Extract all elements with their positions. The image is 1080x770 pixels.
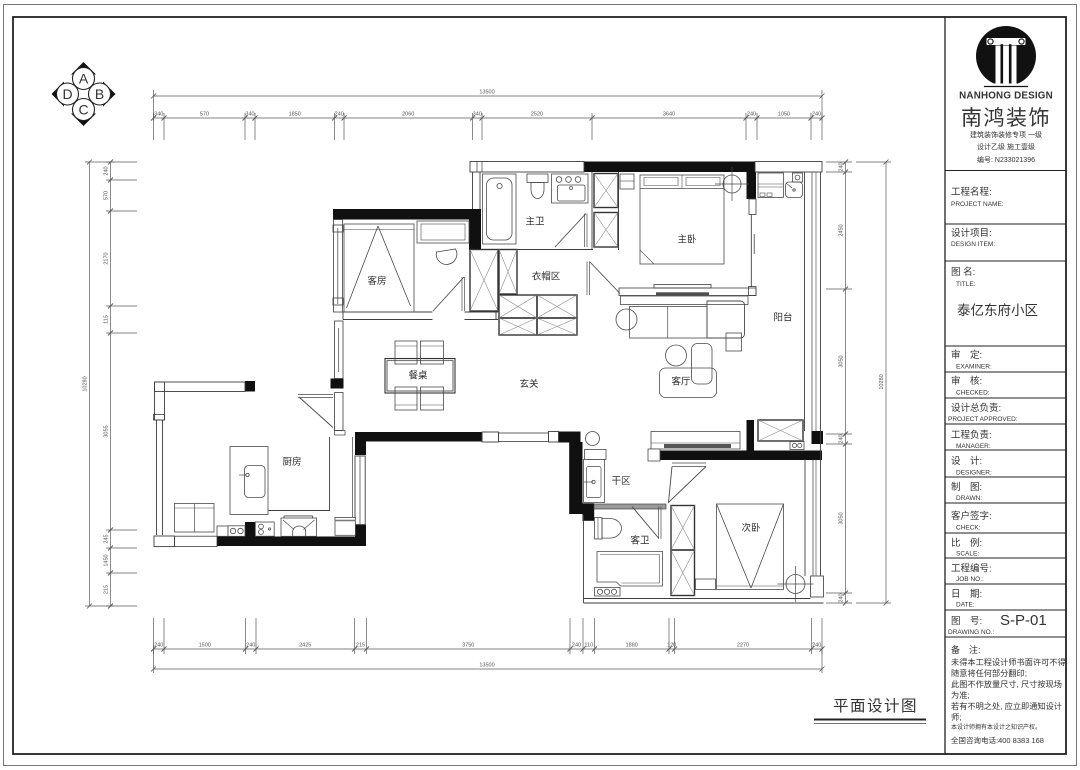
svg-text:TITLE:: TITLE: [956, 281, 976, 288]
svg-text:2170: 2170 [104, 252, 110, 264]
svg-text:2425: 2425 [299, 643, 311, 649]
svg-text:2270: 2270 [737, 643, 749, 649]
svg-text:2450: 2450 [839, 224, 845, 236]
svg-text:3750: 3750 [462, 643, 474, 649]
svg-text:设 计:: 设 计: [951, 455, 982, 467]
svg-text:NANHONG DESIGN: NANHONG DESIGN [959, 91, 1053, 102]
svg-text:1880: 1880 [626, 643, 638, 649]
svg-text:340: 340 [154, 112, 163, 118]
svg-text:240: 240 [839, 593, 845, 602]
svg-text:若有不明之处, 应立即通知设计: 若有不明之处, 应立即通知设计 [951, 701, 1062, 711]
svg-text:340: 340 [245, 112, 254, 118]
svg-text:玄关: 玄关 [519, 378, 539, 390]
svg-text:衣帽区: 衣帽区 [532, 271, 561, 283]
svg-text:日 期:: 日 期: [951, 589, 982, 600]
svg-text:审 定:: 审 定: [951, 349, 982, 361]
svg-text:B: B [95, 86, 104, 102]
svg-text:240: 240 [812, 112, 821, 118]
svg-text:图 号:: 图 号: [951, 616, 982, 627]
svg-text:图 名:: 图 名: [951, 266, 975, 278]
svg-text:120: 120 [667, 643, 676, 649]
svg-text:备 注:: 备 注: [951, 644, 981, 655]
svg-text:MANAGER:: MANAGER: [956, 443, 991, 450]
svg-text:随意将任何部分翻印;: 随意将任何部分翻印; [951, 668, 1027, 678]
svg-text:全国咨询电话:400 8383 168: 全国咨询电话:400 8383 168 [951, 735, 1044, 745]
svg-text:240: 240 [572, 643, 581, 649]
svg-text:A: A [79, 71, 89, 87]
svg-text:建筑装饰装修专项 一级: 建筑装饰装修专项 一级 [970, 130, 1042, 139]
svg-text:2060: 2060 [402, 112, 414, 118]
svg-text:设计总负责:: 设计总负责: [951, 402, 1001, 414]
svg-text:CHECK:: CHECK: [956, 525, 981, 532]
svg-text:DRAWN:: DRAWN: [956, 495, 982, 502]
svg-text:泰亿东府小区: 泰亿东府小区 [957, 303, 1038, 318]
svg-text:240: 240 [246, 643, 255, 649]
svg-text:DRAWING NO.:: DRAWING NO.: [948, 629, 995, 636]
svg-text:S-P-01: S-P-01 [1000, 612, 1047, 629]
svg-text:工程负责:: 工程负责: [951, 429, 992, 441]
svg-text:CHECKED:: CHECKED: [956, 390, 990, 397]
svg-text:C: C [78, 102, 88, 118]
svg-text:JOB NO.:: JOB NO.: [956, 576, 984, 583]
svg-text:215: 215 [104, 585, 110, 594]
svg-text:DATE:: DATE: [956, 602, 975, 609]
svg-text:工程编号:: 工程编号: [951, 563, 992, 575]
svg-text:师;: 师; [951, 712, 961, 722]
svg-text:SCALE:: SCALE: [956, 551, 979, 558]
svg-text:3050: 3050 [839, 355, 845, 367]
svg-text:编号: N233021396: 编号: N233021396 [977, 155, 1035, 164]
svg-text:570: 570 [200, 112, 209, 118]
svg-text:13500: 13500 [479, 90, 494, 96]
svg-text:餐桌: 餐桌 [408, 370, 428, 382]
svg-text:此图不作放量尺寸, 尺寸按现场: 此图不作放量尺寸, 尺寸按现场 [951, 679, 1062, 689]
svg-text:PROJECT NAME:: PROJECT NAME: [951, 201, 1004, 208]
svg-text:10280: 10280 [83, 376, 89, 391]
svg-text:115: 115 [104, 315, 110, 324]
svg-text:340: 340 [473, 112, 482, 118]
svg-text:240: 240 [747, 112, 756, 118]
svg-text:阳台: 阳台 [773, 312, 792, 324]
svg-text:主卧: 主卧 [677, 234, 697, 246]
svg-text:设计乙级 施工壹级: 设计乙级 施工壹级 [977, 142, 1035, 151]
svg-text:2520: 2520 [531, 112, 543, 118]
svg-text:未得本工程设计师书面许可不得: 未得本工程设计师书面许可不得 [951, 657, 1066, 667]
svg-text:厨房: 厨房 [282, 456, 301, 468]
svg-text:客房: 客房 [367, 275, 386, 287]
svg-text:南鸿装饰: 南鸿装饰 [961, 107, 1051, 130]
svg-text:DESIGN ITEM:: DESIGN ITEM: [951, 241, 995, 248]
svg-text:1450: 1450 [104, 554, 110, 566]
svg-text:次卧: 次卧 [741, 522, 761, 534]
svg-text:10280: 10280 [879, 374, 885, 389]
svg-text:240: 240 [839, 434, 845, 443]
svg-text:制 图:: 制 图: [951, 481, 982, 493]
svg-text:客卫: 客卫 [630, 535, 650, 547]
svg-text:3640: 3640 [663, 112, 675, 118]
svg-text:本设计师拥有本设计之知识产权。: 本设计师拥有本设计之知识产权。 [951, 723, 1041, 731]
svg-text:设计项目:: 设计项目: [951, 227, 992, 239]
svg-text:1050: 1050 [778, 112, 790, 118]
svg-text:240: 240 [335, 112, 344, 118]
svg-text:EXAMINER:: EXAMINER: [956, 364, 992, 371]
svg-text:240: 240 [154, 643, 163, 649]
svg-text:干区: 干区 [611, 476, 631, 487]
svg-text:215: 215 [356, 643, 365, 649]
svg-text:1850: 1850 [289, 112, 301, 118]
svg-text:240: 240 [104, 166, 110, 175]
svg-text:工程名程:: 工程名程: [951, 186, 992, 198]
svg-text:DESIGNER:: DESIGNER: [956, 470, 992, 477]
svg-text:13500: 13500 [479, 663, 494, 669]
svg-text:3055: 3055 [104, 425, 110, 437]
svg-text:为准;: 为准; [951, 690, 970, 700]
svg-text:PROJECT APPROVED:: PROJECT APPROVED: [948, 416, 1018, 423]
svg-text:客户签字:: 客户签字: [951, 510, 992, 522]
svg-text:1500: 1500 [199, 643, 211, 649]
svg-text:D: D [62, 86, 72, 102]
svg-text:240: 240 [839, 162, 845, 171]
svg-text:245: 245 [104, 534, 110, 543]
svg-text:3050: 3050 [839, 512, 845, 524]
svg-text:570: 570 [104, 191, 110, 200]
svg-text:审 核:: 审 核: [951, 375, 982, 387]
svg-text:比 例:: 比 例: [951, 537, 982, 549]
svg-text:客厅: 客厅 [671, 376, 691, 388]
svg-text:平面设计图: 平面设计图 [833, 697, 918, 715]
svg-text:110: 110 [584, 643, 593, 649]
svg-text:240: 240 [812, 643, 821, 649]
svg-text:主卫: 主卫 [525, 216, 545, 228]
